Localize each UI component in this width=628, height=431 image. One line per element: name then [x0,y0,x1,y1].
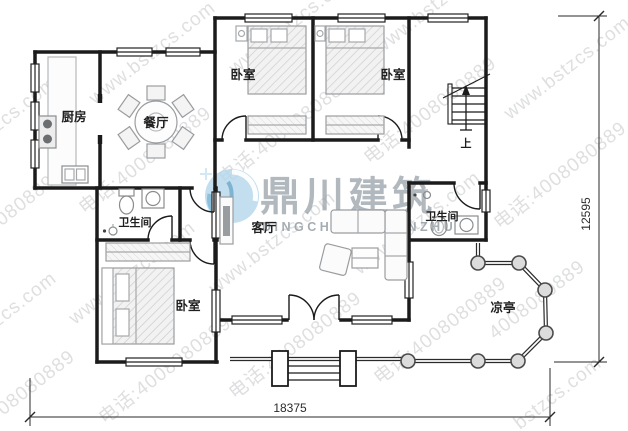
bed-icon [102,268,174,344]
door-icon [222,116,246,140]
toilet-icon [119,189,134,214]
column-icon [539,326,553,340]
window-icon [31,102,39,130]
wardrobe-icon [248,116,306,134]
window-icon [245,14,292,22]
floor-plan-svg: bstzcs.com4008080889bstzcs.com4008080889… [0,0,628,431]
window-icon [212,192,220,238]
dimension-height-label: 12595 [579,197,593,231]
window-icon [338,14,385,22]
column-icon [471,256,485,270]
column-icon [511,354,525,368]
window-icon [31,140,39,168]
watermark-logo: 鼎川建筑 DINGCHUAN-JIANZHU [200,168,456,234]
door-icon [190,240,214,264]
wardrobe-icon [326,116,384,134]
label-bathroom-left: 卫生间 [119,215,152,229]
floor-plan-image: bstzcs.com4008080889bstzcs.com4008080889… [0,0,628,431]
drain-icon [413,193,416,196]
column-icon [512,256,526,270]
window-icon [31,64,39,92]
watermark-text: www.bstzcs.com [499,12,628,124]
porch-column-icon [340,351,356,386]
window-icon [212,290,220,332]
steps-icon [288,366,340,380]
window-icon [117,48,152,56]
label-dining: 餐厅 [142,115,169,130]
window-icon [126,358,182,366]
window-icon [166,48,200,56]
label-bathroom-right: 卫生间 [426,209,459,223]
label-bedroom-bottom: 卧室 [175,298,201,313]
shower-icon [109,224,117,235]
porch-column-icon [272,351,288,386]
label-bedroom-top-right: 卧室 [380,67,406,82]
label-pavilion: 凉亭 [490,300,516,315]
watermark-text: 4008080889 [0,346,79,431]
label-kitchen: 厨房 [61,109,86,124]
stove-icon [39,116,56,148]
dimension-width-label: 18375 [273,401,307,415]
window-icon [232,316,282,324]
watermark-text: 电话:4008080889 [490,117,628,234]
drain-icon [103,229,106,232]
dimension-bottom [25,368,555,426]
sparkle-icon [200,168,212,180]
window-icon [428,14,468,22]
bed-icon [315,26,384,94]
window-icon [482,190,490,212]
watermark-text: bstzcs.com [0,268,61,349]
sink-icon [142,189,164,208]
tv-cabinet-icon [220,197,233,244]
column-icon [401,354,415,368]
column-icon [471,354,485,368]
window-icon [352,316,392,324]
wardrobe-icon [106,243,190,261]
column-icon [538,283,552,297]
kitchen-sink-icon [62,166,88,183]
label-living: 客厅 [250,220,277,235]
label-stairs-up: 上 [461,136,472,150]
label-bedroom-top-left: 卧室 [230,67,256,82]
